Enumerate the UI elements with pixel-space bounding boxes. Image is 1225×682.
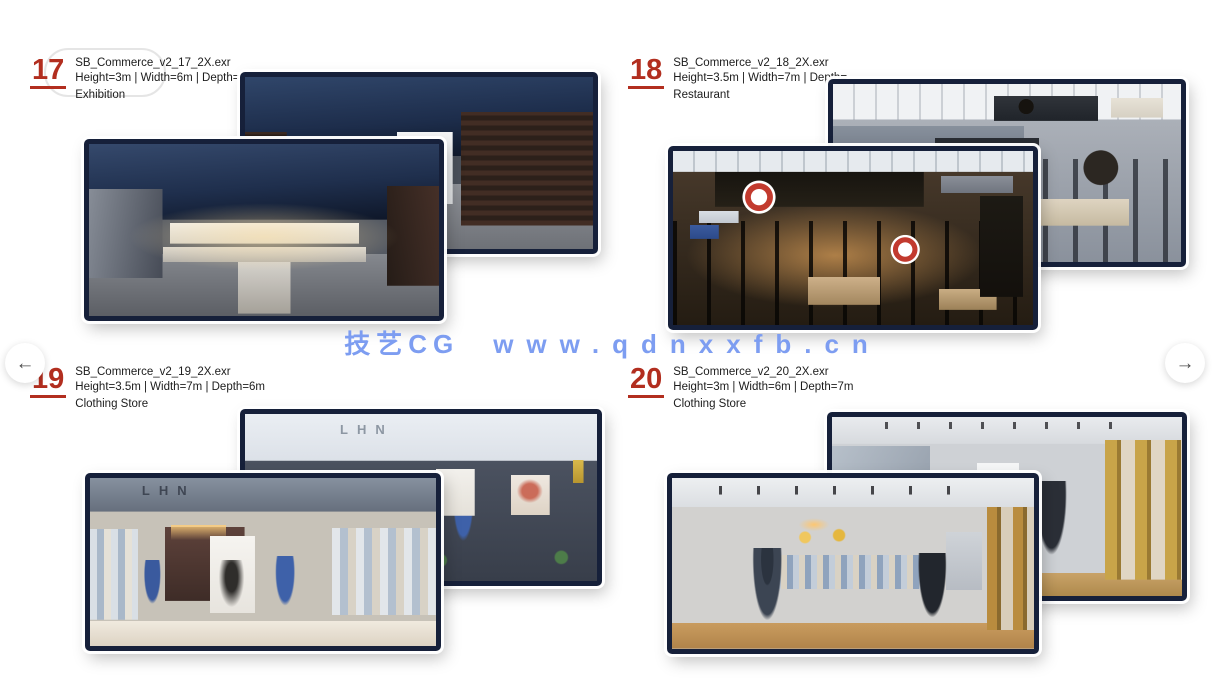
- item-card-20-header: 20 SB_Commerce_v2_20_2X.exr Height=3m | …: [628, 365, 853, 412]
- render-preview-20-front[interactable]: [667, 473, 1039, 654]
- item-category: Exhibition: [75, 88, 246, 103]
- site-watermark: 技艺CGwww.qdnxxfb.cn: [0, 324, 1225, 361]
- item-dimensions: Height=3m | Width=6m | Depth=7m: [673, 380, 853, 395]
- item-card-19-header: 19 SB_Commerce_v2_19_2X.exr Height=3.5m …: [30, 365, 265, 412]
- render-preview-19-front[interactable]: LHN: [85, 473, 441, 651]
- render-preview-17-front[interactable]: [84, 139, 444, 321]
- store-sign-text: LHN: [142, 483, 196, 498]
- item-number: 20: [628, 365, 664, 398]
- item-category: Clothing Store: [673, 397, 853, 412]
- item-card-17-header: 17 SB_Commerce_v2_17_2X.exr Height=3m | …: [30, 56, 246, 103]
- render-preview-18-front[interactable]: [668, 146, 1038, 330]
- item-dimensions: Height=3m | Width=6m | Depth=1: [75, 71, 246, 86]
- item-number: 17: [30, 56, 66, 89]
- item-filename: SB_Commerce_v2_20_2X.exr: [673, 365, 853, 380]
- item-dimensions: Height=3.5m | Width=7m | Depth=6m: [75, 380, 265, 395]
- item-card-18-header: 18 SB_Commerce_v2_18_2X.exr Height=3.5m …: [628, 56, 847, 103]
- right-arrow-icon: →: [1176, 354, 1195, 373]
- store-sign-text: LHN: [340, 422, 394, 437]
- item-category: Clothing Store: [75, 397, 265, 412]
- item-filename: SB_Commerce_v2_19_2X.exr: [75, 365, 265, 380]
- next-button[interactable]: →: [1165, 343, 1205, 383]
- prev-button[interactable]: ←: [5, 343, 45, 383]
- watermark-brand-text: 技艺CG: [344, 329, 459, 359]
- gallery-page: 17 SB_Commerce_v2_17_2X.exr Height=3m | …: [0, 0, 1225, 682]
- item-filename: SB_Commerce_v2_18_2X.exr: [673, 56, 847, 71]
- watermark-site-text: www.qdnxxfb.cn: [493, 329, 881, 359]
- item-dimensions: Height=3.5m | Width=7m | Depth=: [673, 71, 847, 86]
- item-number: 18: [628, 56, 664, 89]
- left-arrow-icon: ←: [16, 354, 35, 373]
- item-filename: SB_Commerce_v2_17_2X.exr: [75, 56, 246, 71]
- item-category: Restaurant: [673, 88, 847, 103]
